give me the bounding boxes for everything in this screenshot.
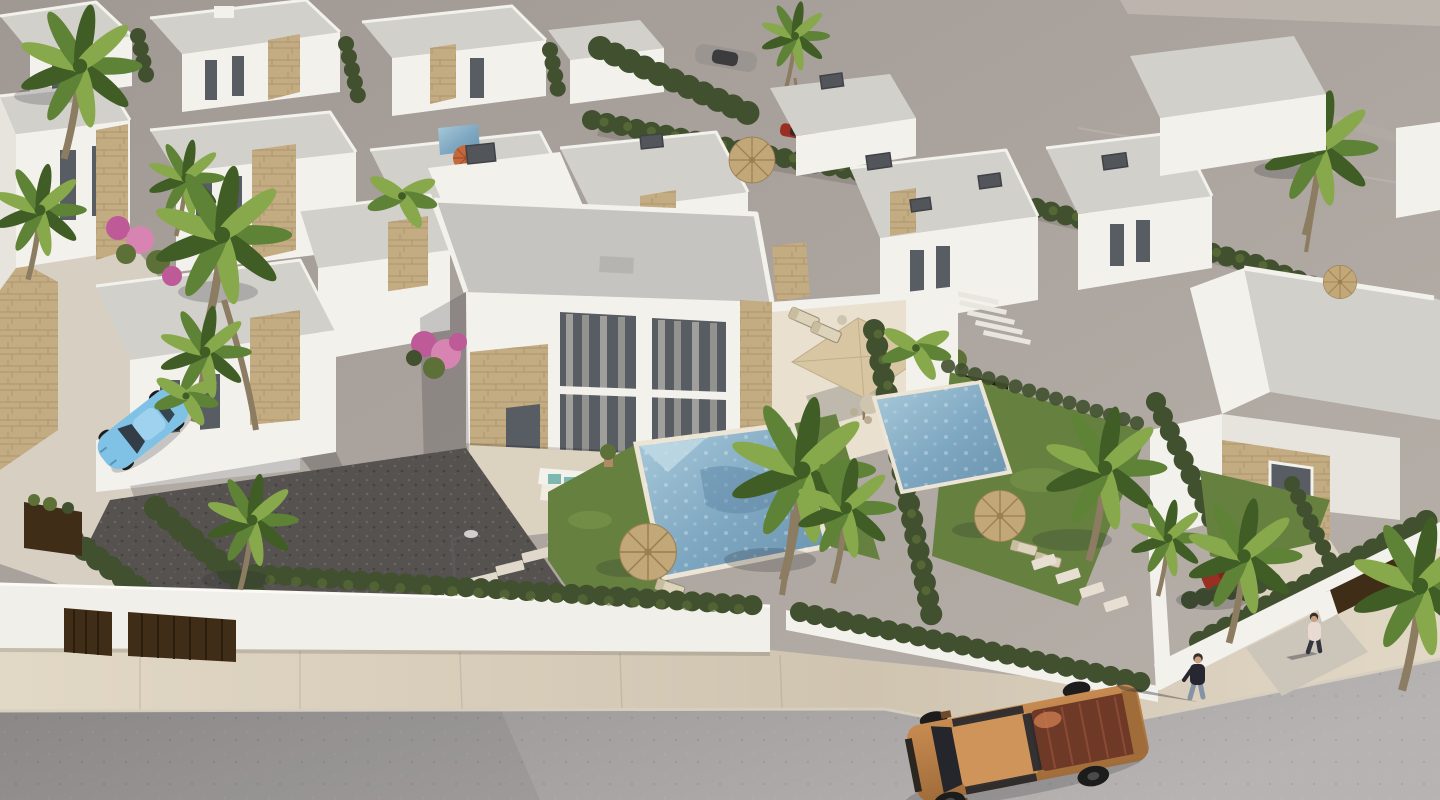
stone-box <box>772 242 810 302</box>
driveway-gate <box>128 612 236 662</box>
render-stage <box>0 0 1440 800</box>
rooftop-thatch-umbrella <box>729 137 775 183</box>
aerial-render <box>0 0 1440 800</box>
roof-ac-unit <box>599 256 634 274</box>
pedestrian-gate <box>64 608 112 656</box>
main-roof <box>434 200 772 302</box>
rooftop-thatch-umbrella <box>1323 265 1356 298</box>
hedge-gap <box>550 50 560 100</box>
chimney <box>466 143 496 164</box>
